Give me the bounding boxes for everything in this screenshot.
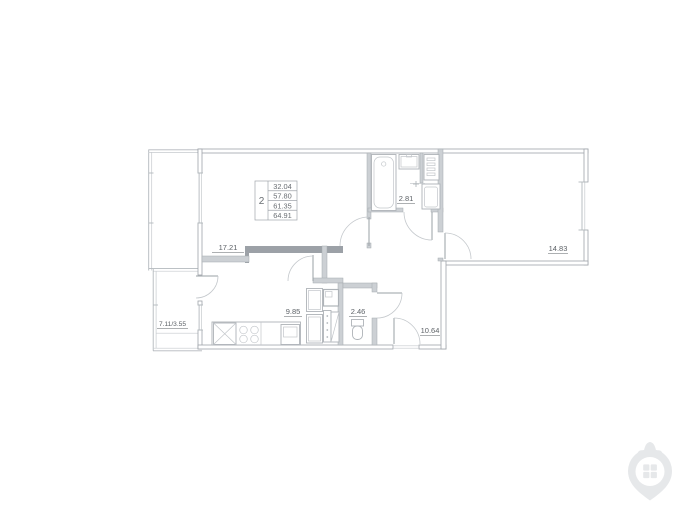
balcony-label: 7.11/3.55 [159,321,186,328]
balcony-door [196,276,218,298]
bathroom-sink [399,155,419,170]
kitchen-label: 9.85 [286,307,301,316]
living-room-door [340,217,369,246]
floor-plan-drawing: 2 32.04 57.80 61.35 64.91 17.21 2.81 14.… [0,0,688,516]
living-room-window [198,173,204,223]
floor-plan-canvas: 2 32.04 57.80 61.35 64.91 17.21 2.81 14.… [0,0,688,516]
tall-cabinets [307,289,323,344]
bedroom-window [579,182,587,230]
stamp-room-count: 2 [259,196,265,207]
watermark-logo [628,442,672,501]
kitchen-door [288,255,313,281]
toilet [352,320,364,340]
meter-cabinet [424,155,439,181]
kitchen-sink [214,323,237,345]
bathtub [372,155,397,211]
stamp-total-area: 64.91 [273,211,292,220]
washing-machine [422,184,440,209]
kitchen-window [198,305,204,330]
area-stamp-table: 2 32.04 57.80 61.35 64.91 [255,181,297,220]
bedroom-label: 14.83 [549,244,568,253]
bathroom-door [404,212,432,240]
stamp-area-2: 57.80 [273,192,292,201]
entrance-door [393,318,420,348]
living-room-label: 17.21 [219,243,238,252]
water-heater [324,290,339,307]
bedroom-door [445,233,471,259]
hall-label: 10.64 [421,326,440,335]
kitchen-appliance [281,325,300,345]
duct-shafts [324,311,340,343]
wc-label: 2.46 [351,307,366,316]
stamp-area-3: 61.35 [273,201,292,210]
bathroom-label: 2.81 [399,194,414,203]
wc-door [377,293,402,318]
stamp-living-area: 32.04 [273,182,292,191]
